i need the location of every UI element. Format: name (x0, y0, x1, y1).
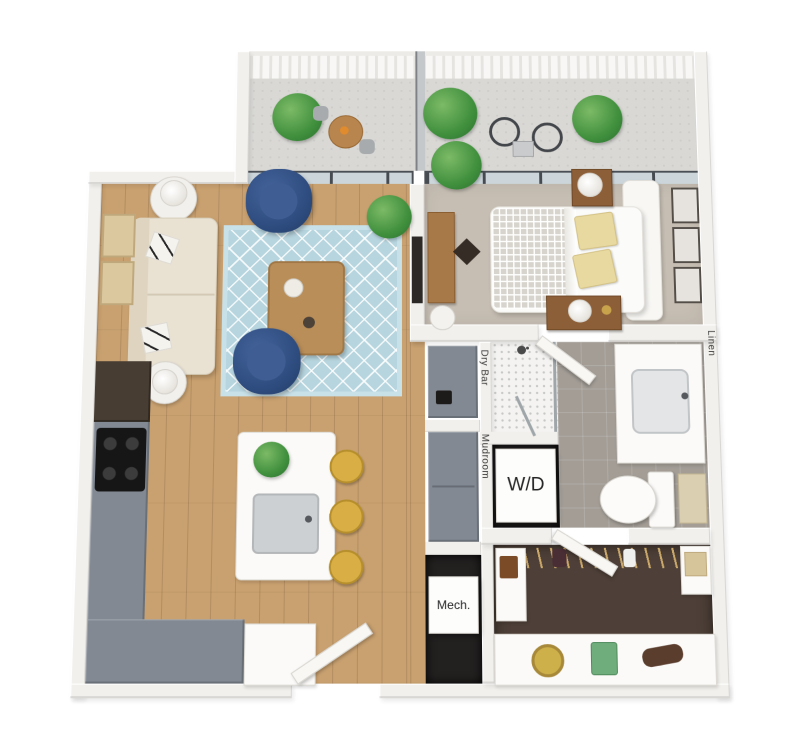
nightstand-lamp-bottom (568, 299, 592, 322)
shower-wd-stub-wall (480, 432, 558, 445)
bath-closet-wall-right (628, 528, 711, 545)
desk (427, 212, 455, 303)
throw-pillow-bottom (140, 322, 172, 354)
bar-stool-2 (329, 499, 364, 533)
bedroom-pocket-door (412, 237, 423, 304)
bar-stool-1 (329, 450, 363, 484)
desk-side-chair (430, 305, 456, 330)
hallway-floor (410, 342, 426, 684)
fruit-bowl (340, 126, 349, 134)
bottom-wall-right (379, 684, 730, 699)
sofa-cushion-line (147, 294, 214, 296)
coffee-maker (436, 390, 452, 404)
balcony-wire-chair-2 (532, 123, 564, 153)
mudroom-bench-line (432, 485, 474, 487)
wall-art-1 (101, 214, 136, 258)
mechanical-text: Mech. (437, 598, 470, 612)
bottom-wall-left (70, 684, 292, 699)
faucet-icon (305, 516, 312, 523)
bed-duvet (492, 208, 566, 309)
mechanical-label: Mech. (430, 577, 478, 632)
cooktop (95, 428, 147, 492)
bed-pillow-1 (574, 211, 618, 250)
label-dry-bar: Dry Bar (478, 350, 489, 418)
balcony-plant-3 (572, 95, 623, 143)
vanity-faucet-icon (681, 392, 688, 399)
hanging-garment-1 (552, 549, 567, 567)
shelf-item-right (684, 552, 707, 576)
armchair-top (245, 169, 312, 233)
floor-plan-render: { "labels": { "dry_bar": "Dry Bar", "mud… (0, 0, 800, 729)
picture-frame-3 (673, 267, 702, 303)
shower-head-icon (517, 346, 526, 355)
coffee-table-decor (303, 317, 315, 329)
bath-closet-wall-left (481, 528, 552, 545)
hat-box (531, 644, 564, 677)
storage-box (591, 642, 618, 675)
balcony-chair-left-1 (313, 106, 329, 121)
balcony-left-wall (234, 51, 250, 184)
kitchen-counter-bottom (85, 619, 245, 683)
balcony-table-right (512, 141, 534, 157)
balcony-plant-2 (423, 88, 477, 140)
toilet-bowl (599, 475, 657, 523)
picture-frame-1 (671, 188, 699, 224)
bedroom-south-wall-right (608, 324, 717, 341)
shelf-item-left (499, 556, 518, 578)
coffee-table-tray (284, 278, 304, 297)
bar-stool-3 (329, 550, 364, 585)
oven-cabinet (94, 361, 152, 422)
hanging-garment-2 (623, 549, 636, 567)
vanity-sink (631, 369, 691, 434)
label-linen: Linen (705, 330, 717, 384)
armchair-bottom (232, 328, 301, 394)
nightstand-lamp-top (577, 173, 603, 197)
bedroom-plant (431, 141, 482, 189)
washer-dryer-label: W/D (496, 450, 555, 522)
drybar-stub-wall (425, 420, 480, 432)
dry-bar-cabinet (428, 346, 478, 418)
mudroom-stub-wall (425, 542, 481, 555)
bedroom-south-wall-left (410, 324, 539, 341)
floor-plan: Dry Bar Mudroom W/D Mech. Linen (70, 51, 730, 702)
island-sink (252, 493, 320, 553)
bed-pillow-2 (572, 248, 618, 289)
gold-accent-lamp (601, 305, 611, 315)
balcony-chair-left-2 (359, 139, 375, 154)
label-mudroom: Mudroom (479, 434, 490, 526)
washer-dryer-text: W/D (507, 474, 545, 496)
towel-cabinet (678, 473, 708, 523)
picture-frame-2 (672, 227, 701, 263)
living-room-plant (367, 195, 412, 238)
wall-art-2 (100, 261, 135, 305)
